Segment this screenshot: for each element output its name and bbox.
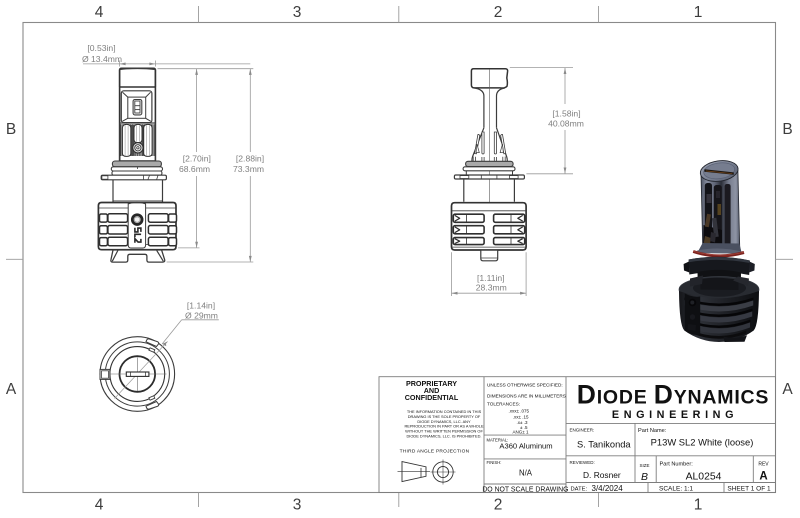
svg-text:ANG± 1: ANG± 1 [513, 430, 529, 435]
svg-text:B: B [641, 471, 648, 483]
svg-text:B: B [6, 121, 16, 138]
svg-text:Ø 13.4mm: Ø 13.4mm [82, 54, 122, 64]
svg-text:[1.58in]: [1.58in] [552, 109, 580, 119]
svg-text:THIRD ANGLE PROJECTION: THIRD ANGLE PROJECTION [400, 449, 470, 455]
svg-text:[1.11in]: [1.11in] [477, 273, 505, 283]
svg-text:SIZE: SIZE [640, 463, 650, 468]
svg-text:REVIEWED:: REVIEWED: [570, 460, 595, 465]
svg-text:Ø 29mm: Ø 29mm [185, 310, 218, 320]
svg-text:REV: REV [758, 462, 769, 468]
svg-text:28.3mm: 28.3mm [476, 283, 507, 293]
svg-text:1: 1 [694, 497, 703, 514]
svg-text:A: A [782, 381, 793, 398]
svg-text:N/A: N/A [519, 469, 533, 478]
svg-text:4: 4 [95, 4, 104, 21]
svg-text:.xx± .15: .xx± .15 [513, 414, 529, 419]
svg-text:2: 2 [494, 497, 503, 514]
svg-text:UNLESS OTHERWISE SPECIFIED:: UNLESS OTHERWISE SPECIFIED: [487, 382, 563, 387]
svg-text:A: A [6, 381, 17, 398]
svg-text:S. Tanikonda: S. Tanikonda [577, 439, 631, 449]
svg-text:[2.70in]: [2.70in] [183, 154, 211, 164]
svg-text:40.08mm: 40.08mm [548, 119, 584, 129]
svg-text:Part Name:: Part Name: [638, 428, 667, 434]
svg-text:4: 4 [95, 497, 104, 514]
svg-text:3: 3 [293, 497, 302, 514]
svg-text:SCALE: 1:1: SCALE: 1:1 [659, 486, 693, 493]
svg-text:[1.14in]: [1.14in] [187, 300, 215, 310]
svg-text:A: A [759, 471, 767, 483]
svg-text:DO NOT SCALE DRAWING: DO NOT SCALE DRAWING [482, 487, 568, 494]
svg-text:DIMENSIONS ARE IN MILLIMETERS: DIMENSIONS ARE IN MILLIMETERS [487, 394, 566, 399]
svg-text:AL0254: AL0254 [686, 472, 722, 483]
svg-text:.xxx± .075: .xxx± .075 [509, 408, 530, 413]
svg-text:D. Rosner: D. Rosner [583, 470, 621, 480]
svg-text:ENGINEERING: ENGINEERING [612, 409, 738, 421]
svg-text:SHEET 1 OF 1: SHEET 1 OF 1 [727, 486, 771, 493]
svg-text:3: 3 [293, 4, 302, 21]
svg-text:[0.53in]: [0.53in] [87, 43, 115, 53]
svg-text:DIODE DYNAMICS, LLC. IS PROHIB: DIODE DYNAMICS, LLC. IS PROHIBITED. [406, 434, 481, 439]
svg-text:TOLERANCES:: TOLERANCES: [487, 402, 520, 407]
svg-text:3/4/2024: 3/4/2024 [592, 484, 624, 493]
svg-text:CONFIDENTIAL: CONFIDENTIAL [405, 393, 459, 402]
svg-text:P13W SL2 White (loose): P13W SL2 White (loose) [651, 436, 754, 447]
svg-text:DATE:: DATE: [571, 487, 588, 493]
svg-text:FINISH:: FINISH: [487, 460, 502, 465]
svg-text:73.3mm: 73.3mm [233, 164, 264, 174]
svg-text:[2.88in]: [2.88in] [236, 154, 264, 164]
svg-text:A360 Aluminum: A360 Aluminum [499, 442, 552, 451]
svg-text:1: 1 [694, 4, 703, 21]
svg-text:ENGINEER:: ENGINEER: [570, 428, 595, 433]
svg-text:B: B [782, 121, 792, 138]
svg-text:Part Number:: Part Number: [660, 462, 694, 468]
svg-text:2: 2 [494, 4, 503, 21]
svg-text:68.6mm: 68.6mm [179, 164, 210, 174]
